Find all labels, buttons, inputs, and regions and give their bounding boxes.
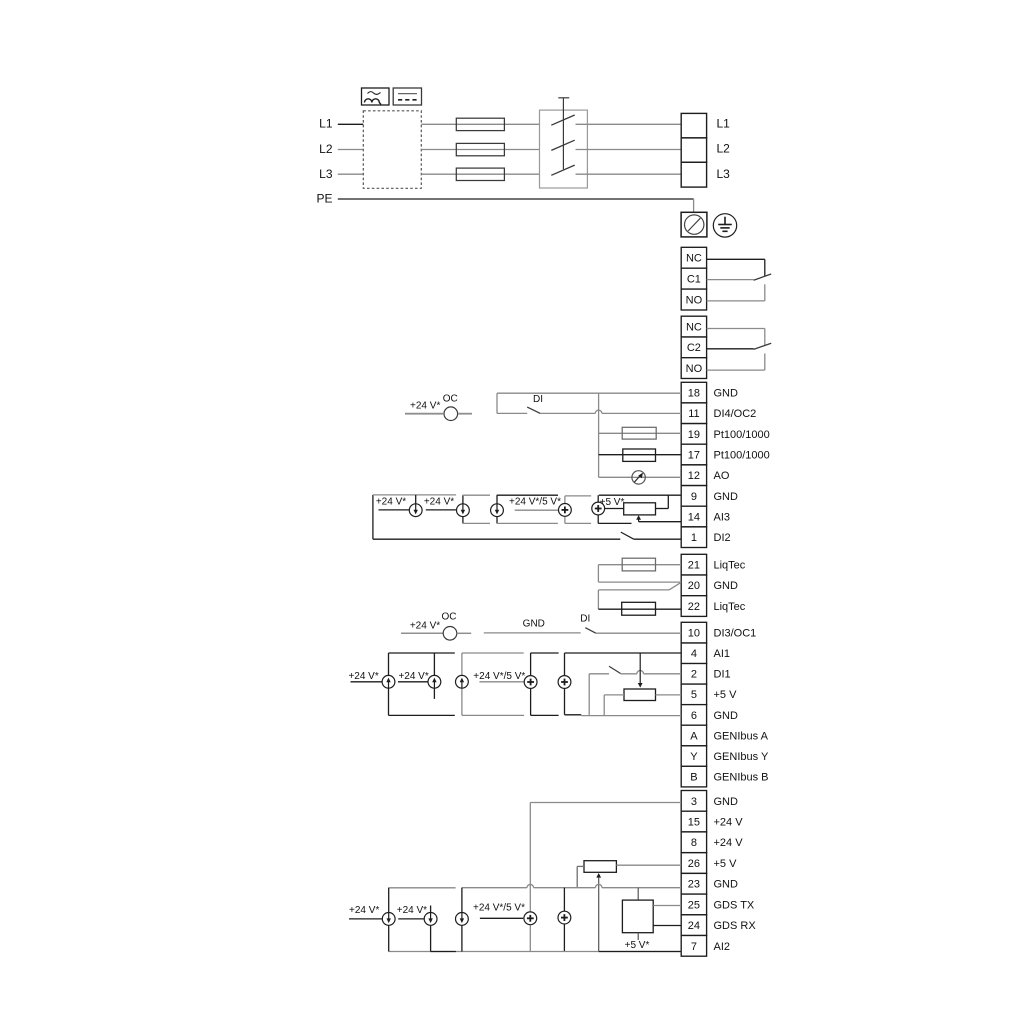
svg-text:DI: DI xyxy=(580,614,590,625)
svg-text:L2: L2 xyxy=(319,142,333,156)
svg-text:NC: NC xyxy=(686,322,702,334)
svg-text:GENIbus Y: GENIbus Y xyxy=(714,751,769,763)
svg-text:Y: Y xyxy=(690,751,698,763)
svg-text:L1: L1 xyxy=(319,117,333,131)
svg-text:DI3/OC1: DI3/OC1 xyxy=(714,628,757,640)
svg-text:LiqTec: LiqTec xyxy=(714,560,746,572)
svg-text:DI4/OC2: DI4/OC2 xyxy=(714,408,757,420)
svg-text:6: 6 xyxy=(691,710,697,722)
svg-text:AI1: AI1 xyxy=(714,648,731,660)
svg-text:Pt100/1000: Pt100/1000 xyxy=(714,450,770,462)
svg-text:GDS TX: GDS TX xyxy=(714,899,755,911)
svg-text:GENIbus B: GENIbus B xyxy=(714,772,769,784)
svg-text:L2: L2 xyxy=(717,142,731,156)
svg-text:GND: GND xyxy=(523,618,545,629)
svg-text:+24 V*/5 V*: +24 V*/5 V* xyxy=(473,671,525,682)
svg-text:+24 V*: +24 V* xyxy=(410,401,440,412)
svg-text:+5 V: +5 V xyxy=(714,689,738,701)
svg-text:PE: PE xyxy=(316,192,332,206)
svg-text:24: 24 xyxy=(688,920,700,932)
svg-text:3: 3 xyxy=(691,796,697,808)
svg-text:DI1: DI1 xyxy=(714,669,731,681)
svg-text:+24 V*: +24 V* xyxy=(376,497,406,508)
svg-text:GND: GND xyxy=(714,388,739,400)
svg-text:+24 V: +24 V xyxy=(714,837,744,849)
svg-text:DI2: DI2 xyxy=(714,532,731,544)
svg-text:B: B xyxy=(690,772,697,784)
svg-text:NO: NO xyxy=(686,295,703,307)
svg-text:1: 1 xyxy=(691,532,697,544)
svg-text:+5 V*: +5 V* xyxy=(600,497,625,508)
svg-text:17: 17 xyxy=(688,450,700,462)
svg-text:LiqTec: LiqTec xyxy=(714,601,746,613)
svg-text:10: 10 xyxy=(688,628,700,640)
svg-text:+24 V*: +24 V* xyxy=(349,905,379,916)
svg-text:2: 2 xyxy=(691,669,697,681)
svg-text:+5 V: +5 V xyxy=(714,858,738,870)
svg-text:21: 21 xyxy=(688,560,700,572)
svg-text:GND: GND xyxy=(714,710,739,722)
svg-text:26: 26 xyxy=(688,858,700,870)
svg-text:L3: L3 xyxy=(319,167,333,181)
svg-text:GND: GND xyxy=(714,796,739,808)
svg-text:+24 V*: +24 V* xyxy=(397,905,427,916)
svg-text:DI: DI xyxy=(533,394,543,405)
svg-text:Pt100/1000: Pt100/1000 xyxy=(714,429,770,441)
svg-text:+24 V*: +24 V* xyxy=(424,497,454,508)
svg-text:+24 V*/5 V*: +24 V*/5 V* xyxy=(473,903,525,914)
svg-text:NO: NO xyxy=(686,363,703,375)
svg-text:23: 23 xyxy=(688,879,700,891)
svg-text:18: 18 xyxy=(688,388,700,400)
svg-text:GND: GND xyxy=(714,879,739,891)
svg-text:20: 20 xyxy=(688,580,700,592)
svg-text:22: 22 xyxy=(688,601,700,613)
svg-text:14: 14 xyxy=(688,511,700,523)
svg-text:C1: C1 xyxy=(687,274,701,286)
svg-text:AI3: AI3 xyxy=(714,511,731,523)
svg-text:GDS RX: GDS RX xyxy=(714,920,757,932)
svg-text:+24 V*/5 V*: +24 V*/5 V* xyxy=(509,496,561,507)
svg-text:8: 8 xyxy=(691,837,697,849)
svg-text:+24 V*: +24 V* xyxy=(398,671,428,682)
svg-text:5: 5 xyxy=(691,689,697,701)
svg-text:15: 15 xyxy=(688,817,700,829)
svg-text:GND: GND xyxy=(714,491,739,503)
svg-text:+5 V*: +5 V* xyxy=(625,940,650,951)
svg-text:12: 12 xyxy=(688,470,700,482)
svg-text:GENIbus A: GENIbus A xyxy=(714,730,769,742)
svg-text:+24 V: +24 V xyxy=(714,817,744,829)
svg-text:L3: L3 xyxy=(717,167,731,181)
svg-text:OC: OC xyxy=(442,612,457,623)
svg-text:4: 4 xyxy=(691,648,697,660)
svg-text:NC: NC xyxy=(686,253,702,265)
svg-text:9: 9 xyxy=(691,491,697,503)
svg-text:L1: L1 xyxy=(717,117,731,131)
svg-text:+24 V*: +24 V* xyxy=(410,621,440,632)
svg-text:+24 V*: +24 V* xyxy=(348,671,378,682)
svg-text:A: A xyxy=(690,730,698,742)
svg-text:AO: AO xyxy=(714,470,730,482)
svg-text:GND: GND xyxy=(714,580,739,592)
svg-text:11: 11 xyxy=(688,408,699,420)
svg-text:7: 7 xyxy=(691,941,697,953)
svg-text:25: 25 xyxy=(688,899,700,911)
svg-text:C2: C2 xyxy=(687,342,701,354)
svg-text:OC: OC xyxy=(443,394,458,405)
svg-text:19: 19 xyxy=(688,429,700,441)
svg-text:AI2: AI2 xyxy=(714,941,731,953)
